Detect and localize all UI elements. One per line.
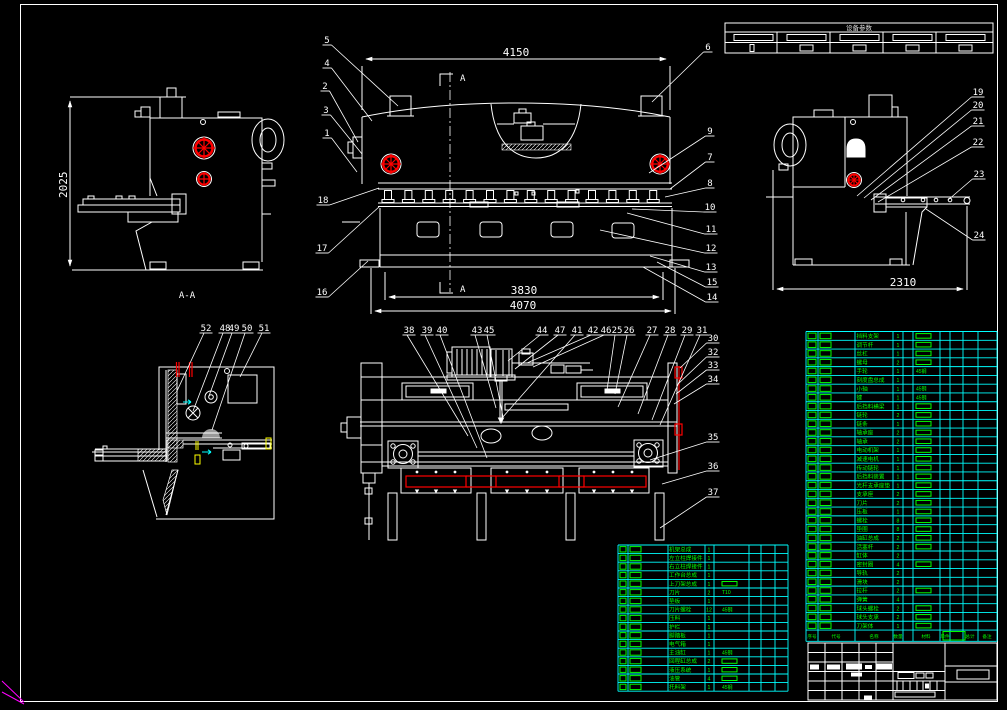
bom-code-box (820, 465, 831, 471)
bom-qty: 8 (897, 518, 900, 524)
bom-seq-box (808, 509, 816, 515)
blade-bolt-cap (464, 200, 476, 203)
bom-part-name: 球头支承 (857, 613, 880, 621)
callout-number: 41 (572, 326, 583, 336)
bom-seq-box (808, 597, 816, 603)
callout-leader (871, 126, 972, 200)
callout-number: 46 (601, 326, 612, 336)
bom-material-blob (722, 668, 737, 672)
callout-leader (329, 206, 381, 253)
callout-number: 18 (318, 196, 329, 206)
bom-code-box (630, 590, 641, 595)
bom-qty: 1 (708, 625, 711, 631)
callout-number: 30 (708, 334, 719, 344)
bom-code-box (630, 598, 641, 603)
bolt-dot (435, 471, 438, 474)
callout-number: 47 (555, 326, 566, 336)
callout-18: 18 (317, 188, 380, 206)
bom-part-name: 链条 (857, 420, 869, 428)
bom-code-box (820, 403, 831, 409)
bom-part-name: 光杆支承座垫 (857, 481, 891, 489)
callout-leader (878, 147, 972, 202)
callout-leader (475, 335, 496, 408)
bom-qty: 2 (897, 606, 900, 612)
bom-part-name: 脚踏板 (669, 631, 686, 639)
callout-leader (193, 333, 223, 411)
callout-12: 12 (600, 230, 718, 254)
bom-code-box (820, 509, 831, 515)
bom-qty: 1 (708, 599, 711, 605)
bom-seq-box (808, 333, 816, 339)
bom-material: 45钢 (722, 649, 733, 656)
blade-bolt (629, 191, 636, 200)
callout-number: 20 (973, 101, 984, 111)
bom-seq-box (808, 359, 816, 365)
bom-material-blob (916, 342, 931, 347)
bom-part-name: 护栏 (669, 623, 681, 631)
callout-4: 4 (323, 59, 373, 121)
bom-material-blob (916, 544, 931, 549)
dim-side-height: 2025 (57, 172, 70, 199)
bom-qty: 1 (708, 565, 711, 571)
bom-qty: 1 (708, 582, 711, 588)
callout-leader (618, 335, 650, 407)
bom-part-name: 油缸总成 (857, 534, 880, 542)
blade-bolt (446, 191, 453, 200)
bom-code-box (630, 555, 641, 560)
bom-seq-box (808, 465, 816, 471)
bom-qty: 2 (897, 615, 900, 621)
bom-code-box (630, 624, 641, 629)
bom-seq-box (620, 590, 626, 595)
bom-seq-box (620, 615, 626, 620)
bom-material-blob (916, 623, 931, 628)
bom-seq-box (620, 547, 626, 552)
blade-bolt-cap (545, 200, 557, 203)
drawing-sheet[interactable]: 2025 A-A (0, 0, 1007, 710)
bom-qty: 2 (897, 413, 900, 419)
bom-seq-box (808, 386, 816, 392)
callout-number: 45 (484, 326, 495, 336)
bom-material-blob (916, 509, 931, 514)
bom-part-name: 丝杠 (857, 350, 869, 358)
callout-number: 25 (612, 326, 623, 336)
bom-code-box (630, 676, 641, 681)
bom-qty: 1 (708, 642, 711, 648)
callout-leader (329, 261, 369, 297)
bom-part-name: 螺母 (857, 358, 869, 366)
callout-37: 37 (660, 488, 720, 528)
bom-seq-box (620, 633, 626, 638)
callout-34: 34 (674, 375, 720, 404)
callout-24: 24 (926, 209, 986, 241)
callout-21: 21 (871, 117, 985, 200)
bom-qty: 1 (708, 668, 711, 674)
bom-part-name: 压板 (857, 508, 869, 516)
bom-material-blob (916, 457, 931, 462)
callout-number: 33 (708, 361, 719, 371)
blade-bolt (650, 191, 657, 200)
callout-leader (508, 335, 540, 361)
callout-number: 1 (324, 129, 329, 139)
bom-part-name: 压料 (669, 614, 681, 622)
callout-20: 20 (864, 101, 985, 198)
bom-part-name: 垫板 (669, 597, 681, 605)
blade-bolt-cap (627, 200, 639, 203)
bom-part-name: 链轮 (857, 411, 869, 419)
bom-part-name: 活塞杆 (857, 543, 874, 551)
callout-number: 11 (706, 225, 717, 235)
callout-leader (240, 333, 262, 377)
bom-code-box (820, 333, 831, 339)
bom-code-box (820, 597, 831, 603)
blade-bolt (568, 191, 575, 200)
bom-material: 45钢 (916, 368, 927, 375)
callout-number: 4 (324, 59, 329, 69)
bom-material-blob (916, 527, 931, 532)
callout-leader (650, 442, 707, 460)
cad-canvas[interactable]: 2025 A-A (0, 0, 1007, 710)
callout-leader (670, 162, 706, 189)
bom-qty: 1 (897, 510, 900, 516)
bom-material-blob (916, 474, 931, 479)
bom-qty: 1 (897, 404, 900, 410)
bom-seq-box (808, 421, 816, 427)
bom-material-blob (916, 360, 931, 365)
bom-seq-box (808, 456, 816, 462)
bom-qty: 1 (897, 483, 900, 489)
callout-number: 14 (707, 293, 718, 303)
callout-number: 38 (404, 326, 415, 336)
bom-code-box (820, 491, 831, 497)
bom-part-name: 螺栓 (857, 516, 869, 524)
bom-header-cell: 序号 (807, 633, 817, 640)
blade-bolt-cap (423, 200, 435, 203)
bom-code-box (820, 438, 831, 444)
blade-bolt (425, 191, 432, 200)
bom-part-name: 刀架体 (857, 622, 874, 630)
blade-bolt-cap (382, 200, 394, 203)
bom-code-box (630, 564, 641, 569)
bom-code-box (820, 351, 831, 357)
callout-number: 50 (242, 324, 253, 334)
bom-qty: 2 (897, 492, 900, 498)
bom-part-name: 键 (857, 394, 863, 402)
bolt-dot (454, 471, 457, 474)
bom-code-box (630, 667, 641, 672)
callout-leader (607, 335, 615, 390)
blade-bolt (466, 191, 473, 200)
bom-qty: 1 (708, 573, 711, 579)
bom-part-name: 回程缸总成 (669, 657, 697, 665)
callout-1: 1 (323, 129, 358, 172)
bom-part-name: 密封圈 (857, 560, 874, 568)
blade-bolt (487, 191, 494, 200)
callout-19: 19 (857, 88, 985, 196)
bom-qty: 1 (708, 556, 711, 562)
dim-side-depth: 2310 (890, 276, 917, 289)
callout-leader (657, 262, 706, 287)
handwheel-front-right (650, 154, 670, 174)
dim-front-blade: 3830 (511, 284, 538, 297)
bom-part-name: 支承座 (857, 490, 874, 498)
bom-material-blob (916, 413, 931, 418)
blade-bolt (548, 191, 555, 200)
bom-seq-box (808, 342, 816, 348)
callout-number: 23 (974, 170, 985, 180)
callout-number: 24 (974, 231, 985, 241)
bom-code-box (630, 581, 641, 586)
bom-code-box (820, 359, 831, 365)
bom-material: T10 (722, 590, 731, 596)
bom-material-blob (916, 351, 931, 356)
bom-part-name: 刻度盘总成 (857, 376, 885, 384)
bom-qty: 4 (897, 562, 900, 568)
bom-material-blob (916, 404, 931, 409)
detail-flow-arrows (183, 400, 211, 454)
callout-number: 22 (973, 138, 984, 148)
bom-qty: 2 (897, 501, 900, 507)
bom-seq-box (808, 623, 816, 629)
bom-code-box (820, 447, 831, 453)
bom-seq-box (808, 553, 816, 559)
callout-leader (857, 97, 972, 196)
bom-material: 45钢 (722, 684, 733, 691)
bom-qty: 4 (897, 597, 900, 603)
callout-17: 17 (316, 206, 381, 254)
callout-23: 23 (948, 170, 986, 200)
callout-leader (680, 343, 707, 368)
bom-code-box (820, 412, 831, 418)
bom-code-box (820, 474, 831, 480)
callout-number: 52 (201, 324, 212, 334)
bom-qty: 2 (708, 590, 711, 596)
bom-code-box (820, 395, 831, 401)
callout-leader (650, 256, 705, 272)
bom-code-box (820, 482, 831, 488)
bom-seq-box (808, 579, 816, 585)
bom-code-box (630, 615, 641, 620)
bom-seq-box (620, 572, 626, 577)
bolt-dot (631, 471, 634, 474)
callout-number: 16 (317, 288, 328, 298)
blade-bolt-cap (443, 200, 455, 203)
bom-part-name: 垫圈 (857, 525, 869, 533)
callout-leader (615, 335, 627, 394)
bom-seq-box (808, 535, 816, 541)
callout-29: 29 (652, 326, 694, 420)
blade-bolt-cap (484, 200, 496, 203)
bom-qty: 8 (897, 527, 900, 533)
bom-part-name: 托料架 (669, 683, 686, 691)
bom-material-blob (916, 588, 931, 593)
callout-number: 29 (682, 326, 693, 336)
bom-part-name: 挡料支架 (857, 332, 880, 340)
bom-code-box (820, 570, 831, 576)
bom-qty: 1 (897, 334, 900, 340)
bom-seq-box (808, 588, 816, 594)
callout-38: 38 (403, 326, 469, 436)
bom-code-box (820, 430, 831, 436)
callout-10: 10 (632, 203, 717, 213)
bolt-dot (612, 471, 615, 474)
bom-part-name: 后挡料横梁 (857, 402, 885, 410)
view-side-left (70, 88, 284, 270)
callout-number: 34 (708, 375, 719, 385)
plan-bolt-marks (415, 471, 634, 494)
callout-leader (209, 333, 232, 396)
bom-seq-box (808, 605, 816, 611)
bom-seq-box (808, 412, 816, 418)
bom-part-name: 调节杆 (857, 341, 874, 349)
handwheel-side-left-lower (197, 172, 212, 187)
bolt-dot (506, 471, 509, 474)
callout-leader (332, 45, 399, 106)
bom-seq-box (620, 598, 626, 603)
bom-qty: 2 (708, 659, 711, 665)
bom-qty: 2 (897, 545, 900, 551)
bom-material-blob (916, 483, 931, 488)
bom-code-box (630, 572, 641, 577)
callout-leader (864, 110, 972, 198)
bom-code-box (820, 605, 831, 611)
callout-13: 13 (650, 256, 718, 273)
callout-leader (638, 335, 668, 414)
bolt-dot (416, 471, 419, 474)
callout-44: 44 (508, 326, 549, 361)
bom-part-name: 工作台总成 (669, 571, 697, 579)
bom-part-name: 拉杆 (857, 587, 869, 595)
bom-qty: 2 (897, 431, 900, 437)
callout-number: 49 (229, 324, 240, 334)
bom-code-box (820, 377, 831, 383)
bom-part-name: 传动链轮 (857, 464, 880, 472)
bom-qty: 2 (897, 536, 900, 542)
bom-material-blob (916, 562, 931, 567)
title-block (808, 643, 997, 700)
callout-leader (330, 188, 380, 205)
callout-number: 19 (973, 88, 984, 98)
bom-material-blob (916, 492, 931, 497)
callout-number: 8 (707, 179, 712, 189)
bom-header-cell: 单件 (940, 633, 950, 640)
callout-number: 6 (705, 43, 710, 53)
bom-code-box (820, 544, 831, 550)
bom-seq-box (808, 570, 816, 576)
bom-part-name: 左立柱焊接件 (669, 554, 703, 562)
bom-qty: 2 (897, 360, 900, 366)
bom-part-name: 主油缸 (669, 649, 686, 657)
bom-qty: 1 (897, 343, 900, 349)
bom-seq-box (808, 500, 816, 506)
bom-seq-box (808, 430, 816, 436)
bom-seq-box (808, 377, 816, 383)
callout-number: 26 (624, 326, 635, 336)
callout-35: 35 (650, 433, 720, 460)
cut-mark-bottom: A (460, 285, 466, 295)
bom-seq-box (808, 447, 816, 453)
bom-header-cell: 材料 (921, 633, 931, 640)
callout-leader (926, 209, 973, 240)
bom-qty: 2 (897, 580, 900, 586)
bom-header-cell: 名称 (869, 633, 879, 640)
bom-qty: 1 (897, 369, 900, 375)
bom-qty: 12 (706, 608, 712, 614)
callout-leader (330, 91, 359, 142)
view-detail (92, 367, 274, 519)
blade-bolt (385, 191, 392, 200)
bom-code-box (630, 650, 641, 655)
bom-seq-box (620, 667, 626, 672)
bom-header-cell: 总计 (965, 633, 975, 640)
callout-number: 43 (472, 326, 483, 336)
view-front (342, 59, 689, 314)
bolt-dot (593, 471, 596, 474)
bom-material: 45钢 (722, 606, 733, 613)
bom-qty: 1 (708, 616, 711, 622)
bolt-dot (526, 471, 529, 474)
bom-part-name: 刀片 (857, 499, 869, 507)
bom-part-name: 滑块 (857, 578, 869, 586)
callout-number: 15 (707, 278, 718, 288)
bom-part-name: 油管 (669, 674, 681, 682)
bom-code-box (820, 579, 831, 585)
callout-number: 39 (422, 326, 433, 336)
bom-table-right: 挡料支架1调节杆1丝杠1螺母2手轮145钢刻度盘总成1小轴145钢键145钢后挡… (806, 332, 997, 642)
callout-leader (632, 209, 704, 212)
bom-qty: 1 (708, 547, 711, 553)
callout-number: 40 (437, 326, 448, 336)
bom-header-cell: 备注 (982, 633, 992, 640)
callout-number: 3 (323, 106, 328, 116)
bom-code-box (820, 561, 831, 567)
bom-code-box (630, 633, 641, 638)
bom-seq-box (808, 368, 816, 374)
bom-qty: 1 (708, 651, 711, 657)
bom-material-blob (916, 439, 931, 444)
bom-part-name: 弹簧 (857, 595, 869, 603)
callout-number: 42 (588, 326, 599, 336)
bom-header-cell: 代号 (831, 633, 841, 640)
bom-code-box (820, 553, 831, 559)
bom-qty: 2 (897, 571, 900, 577)
blade-bolt (507, 191, 514, 200)
callout-number: 32 (708, 348, 719, 358)
bom-code-box (630, 607, 641, 612)
bom-material-blob (722, 676, 737, 680)
bom-qty: 1 (897, 422, 900, 428)
callout-number: 28 (665, 326, 676, 336)
bom-material-blob (916, 606, 931, 611)
bom-seq-box (620, 564, 626, 569)
callout-leader (533, 335, 604, 367)
bom-seq-box (620, 624, 626, 629)
bom-code-box (820, 386, 831, 392)
bom-seq-box (808, 474, 816, 480)
bom-seq-box (808, 395, 816, 401)
bom-seq-box (808, 614, 816, 620)
callout-27: 27 (618, 326, 659, 407)
callout-number: 44 (537, 326, 548, 336)
callout-number: 7 (707, 153, 712, 163)
bom-code-box (820, 368, 831, 374)
bom-qty: 1 (897, 378, 900, 384)
blade-bolt-cap (586, 200, 598, 203)
bom-material-blob (916, 536, 931, 541)
bom-qty: 1 (897, 624, 900, 630)
bom-qty: 1 (897, 387, 900, 393)
callout-26: 26 (615, 326, 636, 394)
